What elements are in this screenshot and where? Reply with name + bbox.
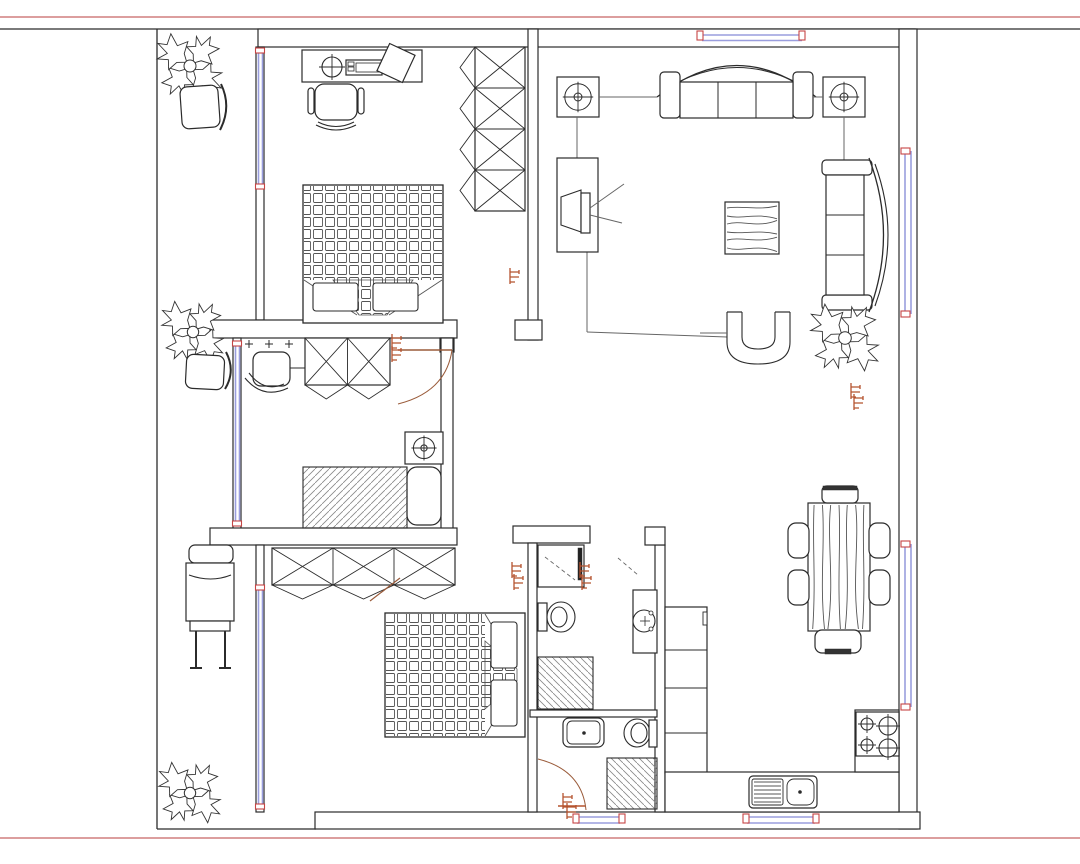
kitchen-sink-hole	[798, 790, 802, 794]
balcony-plant-bottom-center	[184, 787, 195, 798]
sofa-armrest-right	[793, 72, 813, 118]
bath2-sink-drain	[582, 731, 586, 735]
window-bottom-left-mask	[575, 814, 622, 828]
balcony-armchair-top-back	[220, 84, 226, 130]
balcony-plant-bottom	[151, 757, 227, 829]
balcony-lounge-chair-rail	[190, 621, 230, 631]
window-bottom-right-mask	[745, 814, 817, 828]
bath-west-wall	[528, 543, 537, 812]
window-balcony-upper-cap1	[256, 48, 265, 53]
toilet1-tank	[538, 603, 547, 631]
hall-mark	[510, 268, 519, 284]
window-balcony-middle-cap1	[233, 341, 242, 346]
livingroom-plant-center	[839, 332, 852, 345]
window-bottom-left-cap2	[619, 814, 625, 823]
bedroom2-bed	[385, 613, 525, 737]
bathtub	[407, 467, 441, 525]
hall-basin-tap1	[649, 611, 653, 615]
floor-plan-page	[0, 0, 1080, 864]
window-bottom-right-cap1	[743, 814, 749, 823]
window-balcony-lower-cap2	[256, 804, 265, 809]
window-right-upper-cap1	[901, 148, 910, 154]
bath-mark-1	[512, 562, 521, 578]
bedroom2-wardrobe-hanger	[272, 585, 333, 599]
kitchen-door-dash2	[618, 558, 638, 575]
wall-foot	[515, 320, 542, 340]
dressing-mark3	[285, 340, 293, 348]
sofa2-seat	[826, 175, 864, 295]
bath-mark-1	[512, 562, 521, 578]
bedroom1-wardrobe-hanger	[460, 129, 475, 170]
office-chair-arm-r	[358, 88, 364, 114]
hall-mark	[510, 268, 519, 284]
bath-cabinet	[538, 545, 584, 587]
balcony-lounge-chair-seat	[186, 563, 234, 621]
balcony-armchair-middle-back	[225, 352, 231, 389]
kitchen-sink-drain	[752, 779, 783, 805]
middleroom-wardrobe-hanger	[348, 385, 391, 399]
balcony-plant-middle-center	[187, 326, 198, 337]
bedroom1-east-wall	[528, 29, 538, 340]
dressing-mark1	[245, 340, 253, 348]
middleroom-wardrobe	[305, 338, 390, 399]
bedroom2-wardrobe-hanger	[394, 585, 455, 599]
kitchen-cabinet-handle	[703, 612, 707, 625]
bedroom1-bed-pillow1	[313, 283, 358, 311]
balcony-armchair-top	[180, 85, 221, 130]
window-bottom-left-cap1	[573, 814, 579, 823]
window-top-cap1	[697, 31, 703, 40]
bedroom1-bed-quilt	[304, 186, 442, 280]
bath-east-jog	[645, 527, 665, 545]
window-right-lower-cap2	[901, 704, 910, 710]
middleroom-wardrobe-hanger	[305, 385, 348, 399]
window-right-upper-mask	[900, 148, 916, 316]
window-right-lower-mask	[900, 541, 916, 709]
bedroom1-bed	[303, 185, 443, 323]
dining-chair-left2	[788, 570, 809, 605]
toilet1-seat	[551, 607, 567, 627]
dressing-mark2	[265, 340, 273, 348]
middleroom-floor-hatch	[303, 467, 407, 528]
sofa-seat	[680, 82, 793, 118]
shower1-hatch	[538, 657, 593, 709]
keyboard-key2	[348, 67, 354, 71]
office-chair-seat	[315, 84, 357, 120]
window-right-lower-cap1	[901, 541, 910, 547]
balcony-armchair-middle	[185, 354, 225, 390]
window-top-mask	[702, 31, 802, 46]
office-chair-back1	[318, 122, 354, 127]
bedroom1-wardrobe-hanger	[460, 88, 475, 129]
bedroom1-wardrobe	[460, 47, 525, 211]
office-chair-arm-l	[308, 88, 314, 114]
sofa2-back-outer	[869, 158, 884, 312]
toilet2-seat	[631, 723, 647, 743]
bedroom2-wardrobe-hanger	[333, 585, 394, 599]
tv-stand	[557, 158, 598, 252]
bedroom2-wardrobe	[272, 548, 455, 599]
dining-chair-left1	[788, 523, 809, 558]
window-balcony-middle-cap2	[233, 521, 242, 526]
window-balcony-lower-cap1	[256, 585, 265, 590]
floor-plan-canvas	[0, 0, 1080, 864]
bedroom2-bed-quilt	[386, 614, 485, 736]
slab-band-b	[210, 528, 457, 545]
shower2-hatch	[607, 758, 657, 809]
hall-basin-tap2	[649, 627, 653, 631]
sofa2-armrest-bottom	[822, 295, 872, 310]
window-right-upper-cap2	[901, 311, 910, 317]
dining-chair-top-back	[823, 486, 857, 490]
coffee-table	[725, 202, 779, 254]
sofa-armrest-left	[660, 72, 680, 118]
top-wall	[258, 29, 915, 47]
bedroom1-bed-pillow2	[373, 283, 418, 311]
dressing-stool	[253, 352, 290, 386]
balcony-plant-top-center	[184, 60, 196, 72]
balcony-lounge-chair-back	[189, 545, 233, 563]
sofa2-armrest-top	[822, 160, 872, 175]
kitchen-cabinets	[665, 607, 707, 773]
bedroom1-wardrobe-hanger	[460, 170, 475, 211]
living-mark-1	[851, 383, 860, 399]
slab-band-b2	[513, 526, 590, 543]
entry-door-swing	[538, 759, 586, 810]
dining-chair-right1	[869, 523, 890, 558]
office-chair-back2	[316, 125, 356, 130]
keyboard-key1	[348, 62, 354, 66]
dining-chair-bottom-back	[825, 649, 851, 654]
dining-chair-right2	[869, 570, 890, 605]
window-bottom-right-cap2	[813, 814, 819, 823]
armchair-inner	[742, 312, 775, 349]
window-top-cap2	[799, 31, 805, 40]
armchair-outer	[727, 312, 790, 364]
bath-divider-wall	[530, 710, 657, 717]
bedroom1-wardrobe-hanger	[460, 47, 475, 88]
tv-screen	[581, 193, 590, 233]
window-balcony-upper-cap2	[256, 184, 265, 189]
bedroom2-bed-pillow2	[491, 680, 517, 726]
living-mark-1	[851, 383, 860, 399]
bedroom2-bed-pillow1	[491, 622, 517, 668]
toilet2-tank	[649, 720, 657, 747]
